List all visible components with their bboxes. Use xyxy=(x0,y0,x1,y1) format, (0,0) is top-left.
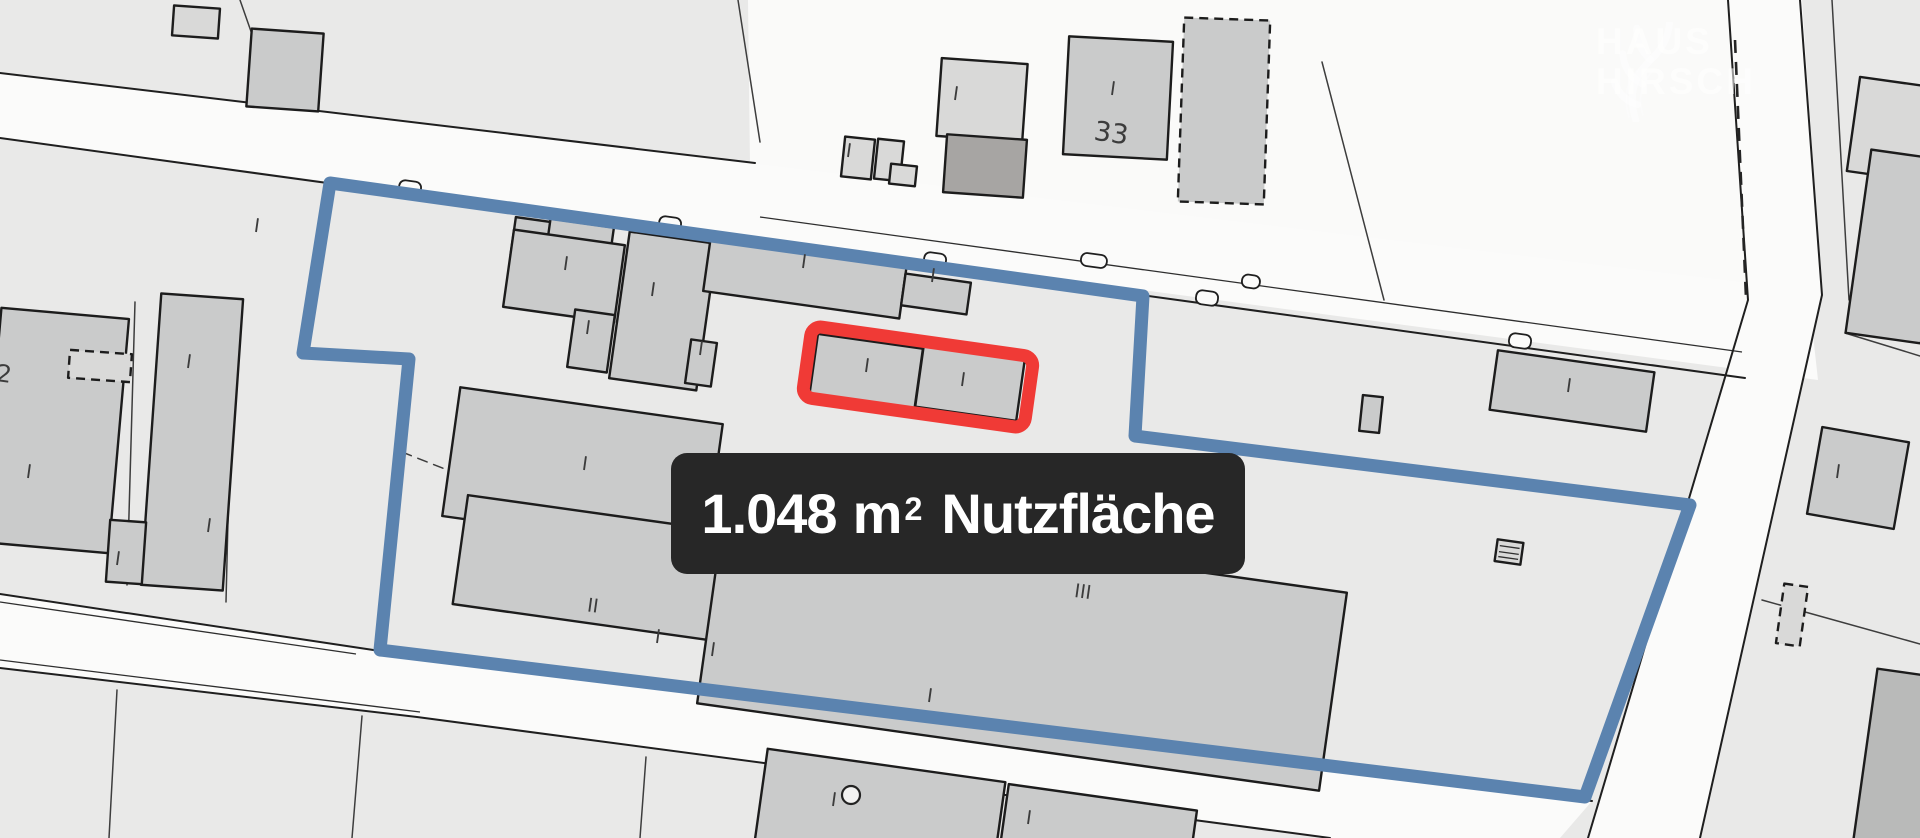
site-plan-screenshot: IIII33IIIIIIIIIIIII2IIIIIIIIIIII 1.048 m… xyxy=(0,0,1920,838)
logo: HAUS HIRSCH xyxy=(1596,22,1756,102)
antler-icon xyxy=(1596,22,1688,122)
hatched-shed xyxy=(1495,539,1524,564)
storey-mark: III xyxy=(1073,580,1093,604)
driveway-bump xyxy=(1508,333,1532,350)
curb-bump xyxy=(1241,274,1261,289)
area-value: 1.048 xyxy=(701,481,836,546)
curb-bump xyxy=(1080,252,1108,268)
house-number: 33 xyxy=(1092,116,1130,151)
cadastral-map: IIII33IIIIIIIIIIIII2IIIIIIIIIIII xyxy=(0,0,1920,838)
area-descriptor: Nutzfläche xyxy=(941,481,1214,546)
driveway-bump xyxy=(1195,290,1219,307)
area-unit: m xyxy=(853,481,902,546)
area-unit-exponent: 2 xyxy=(904,491,921,528)
area-label: 1.048 m2 Nutzfläche xyxy=(671,453,1245,574)
circle-symbol xyxy=(842,786,860,804)
